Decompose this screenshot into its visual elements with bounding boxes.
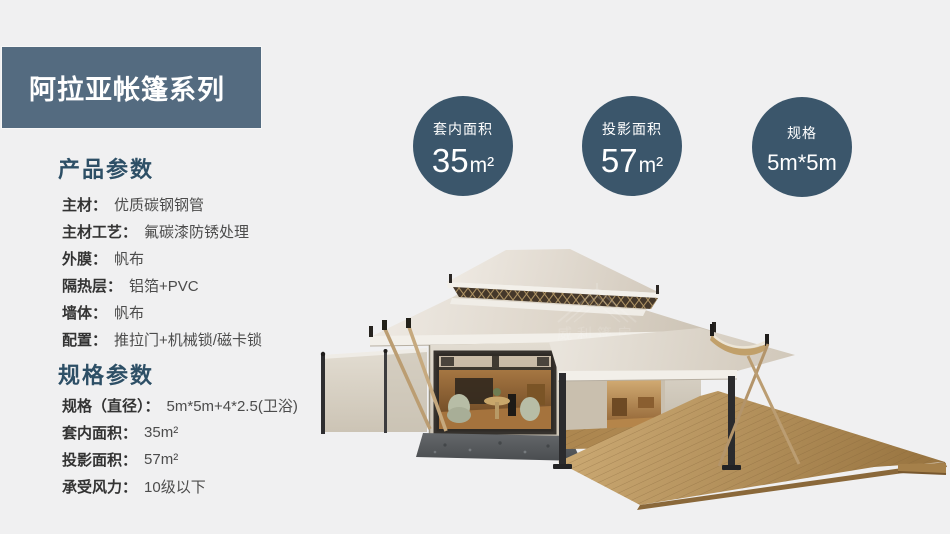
param-value: 优质碳钢钢管 [114, 194, 204, 215]
param-label: 承受风力： [62, 476, 137, 497]
cupola-roof [447, 249, 660, 309]
brand-watermark: 威利篷房 WELL TENT [557, 283, 637, 352]
product-params-heading: 产品参数 [58, 158, 262, 182]
main-wall [429, 342, 563, 441]
param-row: 承受风力：10级以下 [62, 473, 298, 500]
series-title-banner: 阿拉亚帐篷系列 [2, 47, 261, 128]
left-canvas-wing [321, 348, 427, 434]
main-roof [369, 291, 716, 346]
stone-base [416, 433, 581, 461]
param-row: 配置：推拉门+机械锁/磁卡锁 [62, 326, 262, 353]
stat-circle-size: 规格 5m*5m [752, 97, 852, 197]
param-label: 套内面积： [62, 422, 137, 443]
param-value: 5m*5m+4*2.5(卫浴) [167, 395, 298, 416]
stat-circle-inner-area: 套内面积 35m² [413, 96, 513, 196]
param-value: 帆布 [114, 248, 144, 269]
window-interior [439, 356, 551, 429]
param-label: 配置： [62, 329, 107, 350]
annex-roof [549, 328, 795, 381]
wing-pole [384, 352, 387, 433]
param-row: 主材：优质碳钢钢管 [62, 191, 262, 218]
param-label: 主材： [62, 194, 107, 215]
flower-vase [493, 388, 501, 396]
param-row: 外膜：帆布 [62, 245, 262, 272]
param-label: 投影面积： [62, 449, 137, 470]
hammock-canvas [710, 324, 769, 355]
stat-circle-label: 规格 [787, 123, 817, 143]
porch-post [728, 376, 735, 467]
watermark-cn: 威利篷房 [557, 325, 637, 343]
param-value: 10级以下 [144, 476, 206, 497]
stat-circle-label: 投影面积 [602, 119, 662, 139]
page: 阿拉亚帐篷系列 产品参数 主材：优质碳钢钢管 主材工艺：氟碳漆防锈处理 外膜：帆… [0, 0, 950, 534]
param-value: 推拉门+机械锁/磁卡锁 [114, 329, 262, 350]
stat-circle-label: 套内面积 [433, 119, 493, 139]
mid-roof [450, 291, 650, 316]
product-params-list: 主材：优质碳钢钢管 主材工艺：氟碳漆防锈处理 外膜：帆布 隔热层：铝箔+PVC … [62, 191, 262, 353]
guy-poles [382, 318, 799, 466]
porch-posts [553, 373, 741, 470]
param-label: 外膜： [62, 248, 107, 269]
cupola-finial [449, 274, 452, 283]
pedestal-table [484, 397, 510, 406]
porch [566, 369, 701, 449]
stat-circle-value: 35m² [432, 144, 494, 177]
porch-doorway [607, 375, 661, 431]
param-row: 规格（直径）：5m*5m+4*2.5(卫浴) [62, 392, 298, 419]
deck-step [898, 463, 946, 474]
product-params-section: 产品参数 主材：优质碳钢钢管 主材工艺：氟碳漆防锈处理 外膜：帆布 隔热层：铝箔… [58, 158, 262, 353]
series-title: 阿拉亚帐篷系列 [29, 68, 225, 107]
param-row: 隔热层：铝箔+PVC [62, 272, 262, 299]
spec-params-section: 规格参数 规格（直径）：5m*5m+4*2.5(卫浴) 套内面积：35m² 投影… [58, 364, 298, 500]
spec-params-list: 规格（直径）：5m*5m+4*2.5(卫浴) 套内面积：35m² 投影面积：57… [62, 392, 298, 500]
param-value: 57m² [144, 451, 178, 468]
stat-circle-projection-area: 投影面积 57m² [582, 96, 682, 196]
param-row: 墙体：帆布 [62, 299, 262, 326]
eave-finial [712, 322, 716, 333]
wood-deck [558, 391, 947, 510]
tent-structure: 威利篷房 WELL TENT [321, 249, 947, 510]
stat-circle-value: 5m*5m [767, 148, 837, 174]
param-label: 墙体： [62, 302, 107, 323]
main-window [435, 352, 555, 433]
param-label: 主材工艺： [62, 221, 137, 242]
watermark-en: WELL TENT [561, 343, 632, 352]
armchair [520, 397, 540, 421]
piano [455, 378, 493, 404]
wing-pole [321, 355, 325, 434]
window-interior-furniture [439, 378, 551, 429]
porch-post [559, 373, 566, 466]
param-value: 35m² [144, 424, 178, 441]
stat-circle-value: 57m² [601, 144, 663, 177]
param-row: 套内面积：35m² [62, 419, 298, 446]
param-value: 帆布 [114, 302, 144, 323]
cabinet [527, 384, 545, 405]
param-value: 铝箔+PVC [129, 275, 199, 296]
param-value: 氟碳漆防锈处理 [144, 221, 249, 242]
roof-lattice-vent [453, 287, 658, 309]
deck-edge [637, 462, 947, 510]
porch-floor [566, 424, 700, 449]
spec-params-heading: 规格参数 [58, 364, 298, 388]
param-label: 规格（直径）： [62, 395, 160, 416]
param-row: 投影面积：57m² [62, 446, 298, 473]
param-label: 隔热层： [62, 275, 122, 296]
param-row: 主材工艺：氟碳漆防锈处理 [62, 218, 262, 245]
eave-finial [369, 326, 373, 337]
armchair [448, 394, 470, 420]
cupola-finial [656, 285, 659, 294]
porch-side-wall [665, 369, 701, 442]
